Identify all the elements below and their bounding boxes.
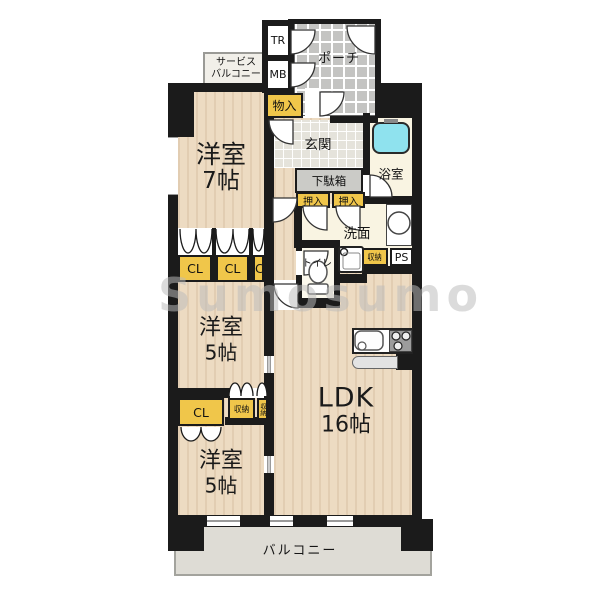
meter-box-label: MB [269,68,286,81]
room5-middle-label: 洋室 5帖 [199,316,243,363]
shoe-cabinet-label: 下駄箱 [312,173,347,189]
service-balcony-label-1: サービス [216,57,256,69]
service-balcony: サービス バルコニー [203,52,269,85]
sliding-door-room5-bottom [264,456,274,473]
bathroom-label: 浴室 [378,164,403,183]
balcony-window-2 [270,516,293,526]
room5-bottom-name: 洋室 [199,449,243,474]
ldk-name: LDK [318,384,375,414]
oshiire-left-box: 押入 [296,192,330,208]
porch-threshold [305,88,321,116]
room5-bottom-size: 5帖 [199,474,243,496]
stove-icon [389,330,412,352]
wall-left-lower [168,195,178,525]
pipe-space-box: PS [390,248,413,266]
room7-size: 7帖 [196,169,246,195]
wall-bath-bottom [363,196,412,204]
ldk-label: LDK 16帖 [318,384,375,439]
room7-name: 洋室 [196,141,246,169]
closet-4-label: CL [193,405,209,420]
wall-corner-bottomleft [168,519,204,551]
balcony-window-3 [327,516,353,526]
wall-room-divider-mid [168,388,230,398]
balcony-window-1 [207,516,240,526]
storage-b1-box: 収納 [228,398,255,420]
room5-bottom-label: 洋室 5帖 [199,449,243,496]
shoe-cabinet-box: 下駄箱 [295,168,363,193]
balcony-label: バルコニー [263,540,338,559]
entry-storage-box: 物入 [266,93,303,118]
washbasin-cabinet [386,204,412,246]
washroom-label: 洗面 [344,222,371,242]
storage-washroom-label: 収納 [368,251,382,263]
service-balcony-label-2: バルコニー [211,69,261,81]
wall-porch-top [288,19,380,24]
storage-washroom-box: 収納 [362,248,388,266]
wall-porch-bottom [330,116,378,123]
storage-b2-box: 収納 [257,398,268,420]
room5-middle-size: 5帖 [199,341,243,363]
wall-corner-bottomright [401,519,433,551]
ldk-size: 16帖 [318,414,375,439]
entrance-label: 玄関 [305,133,332,153]
entry-storage-label: 物入 [272,97,296,114]
wall-left-upper [168,92,178,137]
floor-plan: サービス バルコニー TR MB 物入 下駄箱 [0,0,600,600]
trunk-room-box: TR [268,26,288,55]
oshiire-right-box: 押入 [332,192,365,208]
porch-label: ポーチ [318,48,360,67]
watermark: Sumosumo [158,268,483,322]
closet-4-box: CL [178,398,224,426]
storage-b2-label: 収納 [258,403,268,416]
room7-label: 洋室 7帖 [196,141,246,195]
sliding-door-room5-middle [264,356,274,373]
bathtub-faucet-icon [384,119,398,123]
meter-box: MB [268,61,288,88]
wall-kitchen-block [396,352,413,370]
kitchen-lower-counter [352,356,398,369]
trunk-room-label: TR [271,34,285,47]
oshiire-right-label: 押入 [339,193,359,208]
room7-window [168,137,178,195]
storage-b1-label: 収納 [234,403,249,415]
pipe-space-label: PS [395,251,409,264]
bathtub-icon [372,122,410,154]
oshiire-left-label: 押入 [303,193,323,208]
